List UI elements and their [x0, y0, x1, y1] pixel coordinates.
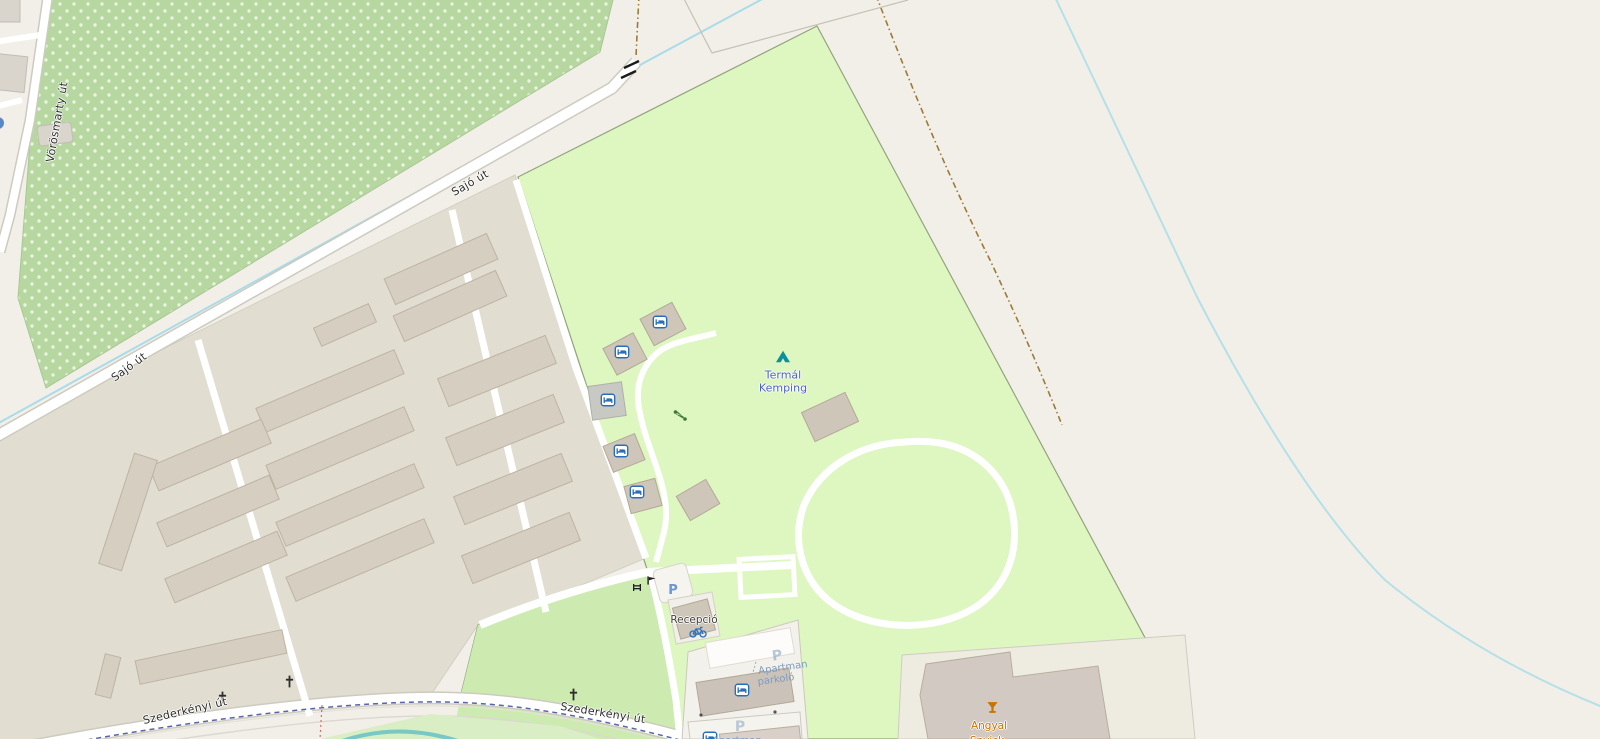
lodge-bed-icon[interactable]: [630, 486, 643, 498]
lodge-bed-icon[interactable]: [653, 316, 666, 328]
apartman-bottom-label[interactable]: Apartman: [712, 736, 762, 739]
bar-label-line1[interactable]: Angyal: [971, 720, 1007, 732]
map-canvas[interactable]: P P P Vörösmarty út Sajó út Sajó út Szed…: [0, 0, 1600, 739]
gate-icon: [773, 710, 776, 713]
campsite-label-line1[interactable]: Termál: [765, 369, 801, 382]
lodge-bed-icon[interactable]: [735, 684, 748, 696]
lodge-bed-icon[interactable]: [601, 394, 614, 406]
campsite-label-line2[interactable]: Kemping: [759, 382, 807, 395]
parking-icon[interactable]: P: [668, 583, 678, 598]
parking-icon[interactable]: P: [735, 719, 745, 735]
lodge-bed-icon[interactable]: [615, 346, 628, 358]
bar-label-line2[interactable]: Snyick: [970, 735, 1004, 739]
gate-icon: [699, 713, 702, 716]
reception-label[interactable]: Recepció: [670, 614, 717, 626]
lodge-bed-icon[interactable]: [614, 445, 627, 457]
